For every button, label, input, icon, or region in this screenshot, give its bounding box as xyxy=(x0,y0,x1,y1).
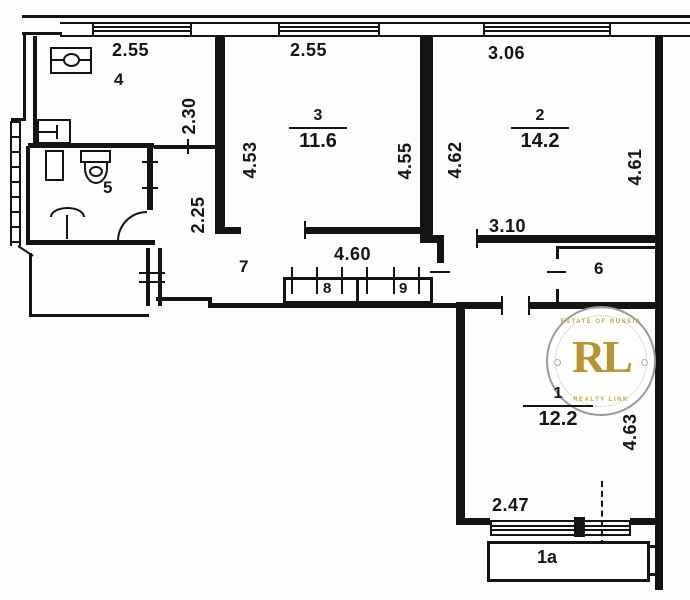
dimension-label: 2.30 xyxy=(179,93,199,139)
hatched-wall-strip xyxy=(10,121,21,246)
door-jamb-tick xyxy=(142,187,158,189)
dimension-label: 3.10 xyxy=(489,216,526,237)
exterior-wall-left xyxy=(29,253,32,316)
washing-machine-icon xyxy=(45,150,64,181)
door-jamb-tick xyxy=(430,271,450,273)
wall-segment xyxy=(22,15,690,18)
door-swing-arc xyxy=(117,211,147,241)
closet-hatch-tick xyxy=(366,267,368,294)
window-room3 xyxy=(278,22,380,37)
dimension-label: 2.25 xyxy=(188,192,208,238)
dimension-label: 4.62 xyxy=(445,137,465,183)
door-jamb-tick xyxy=(304,221,306,239)
dimension-label: 4.61 xyxy=(625,144,645,190)
dimension-tick xyxy=(187,139,189,154)
wall-segment xyxy=(556,246,559,259)
exterior-wall-left xyxy=(23,34,26,121)
fraction-bar xyxy=(511,127,569,129)
wall-segment xyxy=(147,148,153,210)
wall-segment xyxy=(650,573,658,576)
wall-segment xyxy=(154,145,217,149)
exterior-wall-room1-left xyxy=(456,302,465,525)
door-jamb-tick xyxy=(528,296,530,315)
room-label-2: 2 14.2 xyxy=(509,107,571,152)
exterior-wall-right xyxy=(655,36,663,590)
dimension-label: 2.55 xyxy=(290,40,327,61)
fraction-bar xyxy=(289,127,347,129)
closet-hatch-tick xyxy=(393,267,395,294)
door-jamb-tick xyxy=(476,229,478,248)
room-area: 14.2 xyxy=(509,130,571,152)
closet-hatch-tick xyxy=(316,267,318,294)
wall-segment xyxy=(650,545,658,548)
fraction-bar xyxy=(523,405,593,407)
entry-door-frame xyxy=(146,248,150,306)
room-label-8: 8 xyxy=(323,280,331,297)
door-jamb-tick xyxy=(501,296,503,315)
wall-segment xyxy=(305,227,432,234)
balcony-door-post xyxy=(574,517,585,537)
dimension-label: 2.47 xyxy=(492,495,529,516)
room-label-6: 6 xyxy=(594,259,603,279)
watermark-arc-top: ESTATE OF RUSSIA xyxy=(548,319,654,325)
closet-hatch-tick xyxy=(341,267,343,294)
room-label-5: 5 xyxy=(103,178,112,198)
room-number: 2 xyxy=(509,107,571,125)
wall-segment xyxy=(22,32,62,35)
door-jamb-tick xyxy=(139,272,165,274)
wall-segment xyxy=(456,518,490,525)
room-number: 1 xyxy=(521,385,595,403)
window-room4 xyxy=(92,22,192,37)
closet-hatch-tick xyxy=(418,267,420,294)
dimension-label: 3.06 xyxy=(488,43,525,64)
dimension-label: 4.60 xyxy=(334,244,371,265)
wall-segment xyxy=(156,297,212,301)
watermark-initials: RL xyxy=(548,330,654,383)
door-jamb-tick xyxy=(139,281,165,283)
dimension-label: 4.63 xyxy=(620,409,640,455)
wall-segment xyxy=(556,246,655,249)
balcony-window xyxy=(490,520,631,536)
room-label-9: 9 xyxy=(399,280,407,297)
washbasin-stand xyxy=(66,215,68,239)
room-number: 3 xyxy=(287,107,349,125)
room-label-7: 7 xyxy=(239,257,248,277)
watermark-dot xyxy=(554,359,561,366)
door-jamb-tick xyxy=(142,161,158,163)
room-area: 12.2 xyxy=(521,408,595,430)
sink-icon xyxy=(37,119,71,144)
stove-icon xyxy=(50,47,92,74)
dimension-label: 4.55 xyxy=(395,138,415,184)
wall-segment xyxy=(26,146,30,245)
room-label-4: 4 xyxy=(114,70,123,90)
window-room2 xyxy=(483,22,611,37)
closet-hatch-tick xyxy=(291,267,293,294)
door-jamb-tick xyxy=(547,271,566,273)
dimension-label: 2.55 xyxy=(112,40,149,61)
wall-segment xyxy=(630,518,656,525)
wall-segment xyxy=(215,227,241,234)
wall-room2-left xyxy=(420,36,433,243)
room-label-3: 3 11.6 xyxy=(287,107,349,152)
room-area: 11.6 xyxy=(287,130,349,152)
room-label-1a: 1a xyxy=(537,547,557,568)
watermark-dot xyxy=(641,359,648,366)
room-label-1: 1 12.2 xyxy=(521,385,595,430)
balcony-1a xyxy=(487,541,650,582)
wall-segment xyxy=(433,235,444,243)
closet-divider xyxy=(356,277,359,304)
wall-room3-left xyxy=(215,36,225,233)
dimension-label: 4.53 xyxy=(240,137,260,183)
wall-segment xyxy=(437,243,444,263)
floor-plan: ESTATE OF RUSSIA RL REALTY LINK 4 5 7 8 … xyxy=(0,0,690,600)
wall-segment xyxy=(29,314,149,317)
